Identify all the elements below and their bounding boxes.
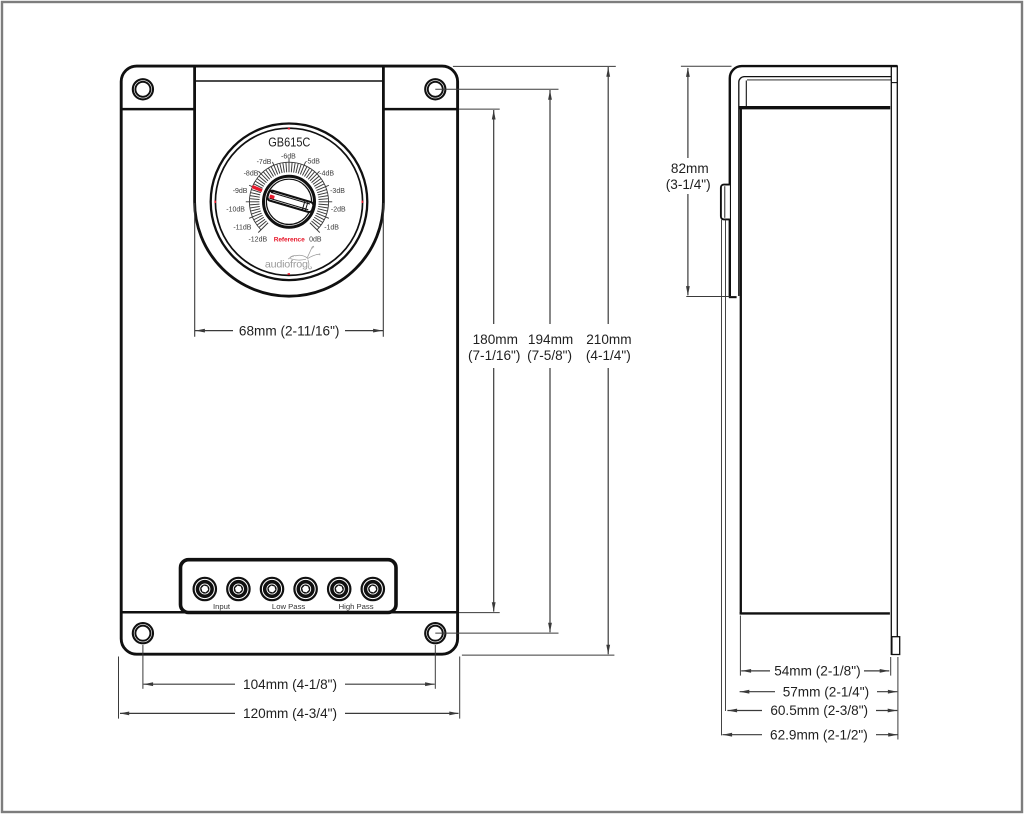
svg-text:(4-1/4"): (4-1/4"): [586, 348, 631, 363]
svg-text:104mm (4-1/8"): 104mm (4-1/8"): [243, 677, 337, 692]
svg-text:(7-1/16"): (7-1/16"): [468, 348, 520, 363]
svg-text:82mm: 82mm: [671, 161, 709, 176]
svg-text:194mm: 194mm: [528, 332, 573, 347]
svg-text:(3-1/4"): (3-1/4"): [666, 177, 711, 192]
svg-text:-12dB: -12dB: [248, 236, 267, 243]
svg-text:180mm: 180mm: [473, 332, 518, 347]
svg-text:-2dB: -2dB: [331, 207, 346, 214]
svg-text:-4dB: -4dB: [319, 171, 334, 178]
svg-text:210mm: 210mm: [586, 332, 631, 347]
svg-text:-1dB: -1dB: [324, 225, 339, 232]
svg-text:-10dB: -10dB: [226, 207, 245, 214]
svg-text:(7-5/8"): (7-5/8"): [527, 348, 572, 363]
svg-text:High Pass: High Pass: [339, 602, 374, 611]
svg-text:Reference: Reference: [274, 236, 305, 243]
svg-text:54mm (2-1/8"): 54mm (2-1/8"): [774, 664, 860, 679]
svg-text:120mm (4-3/4"): 120mm (4-3/4"): [243, 706, 337, 721]
svg-text:audiofrog: audiofrog: [265, 259, 308, 270]
svg-text:57mm (2-1/4"): 57mm (2-1/4"): [783, 684, 869, 699]
svg-text:Input: Input: [213, 602, 231, 611]
svg-text:60.5mm (2-3/8"): 60.5mm (2-3/8"): [770, 703, 868, 718]
svg-text:68mm (2-11/16"): 68mm (2-11/16"): [239, 323, 340, 338]
svg-text:0dB: 0dB: [309, 236, 322, 243]
svg-text:GB615C: GB615C: [268, 135, 310, 150]
svg-text:Low Pass: Low Pass: [272, 602, 305, 611]
svg-text:-11dB: -11dB: [233, 225, 251, 232]
svg-text:-3dB: -3dB: [330, 188, 345, 195]
svg-text:-8dB: -8dB: [244, 170, 259, 177]
svg-text:-5dB: -5dB: [305, 159, 320, 166]
svg-text:-9dB: -9dB: [233, 188, 248, 195]
svg-text:-6dB: -6dB: [281, 154, 296, 161]
svg-text:62.9mm (2-1/2"): 62.9mm (2-1/2"): [770, 727, 868, 742]
svg-text:-7dB: -7dB: [257, 159, 272, 166]
